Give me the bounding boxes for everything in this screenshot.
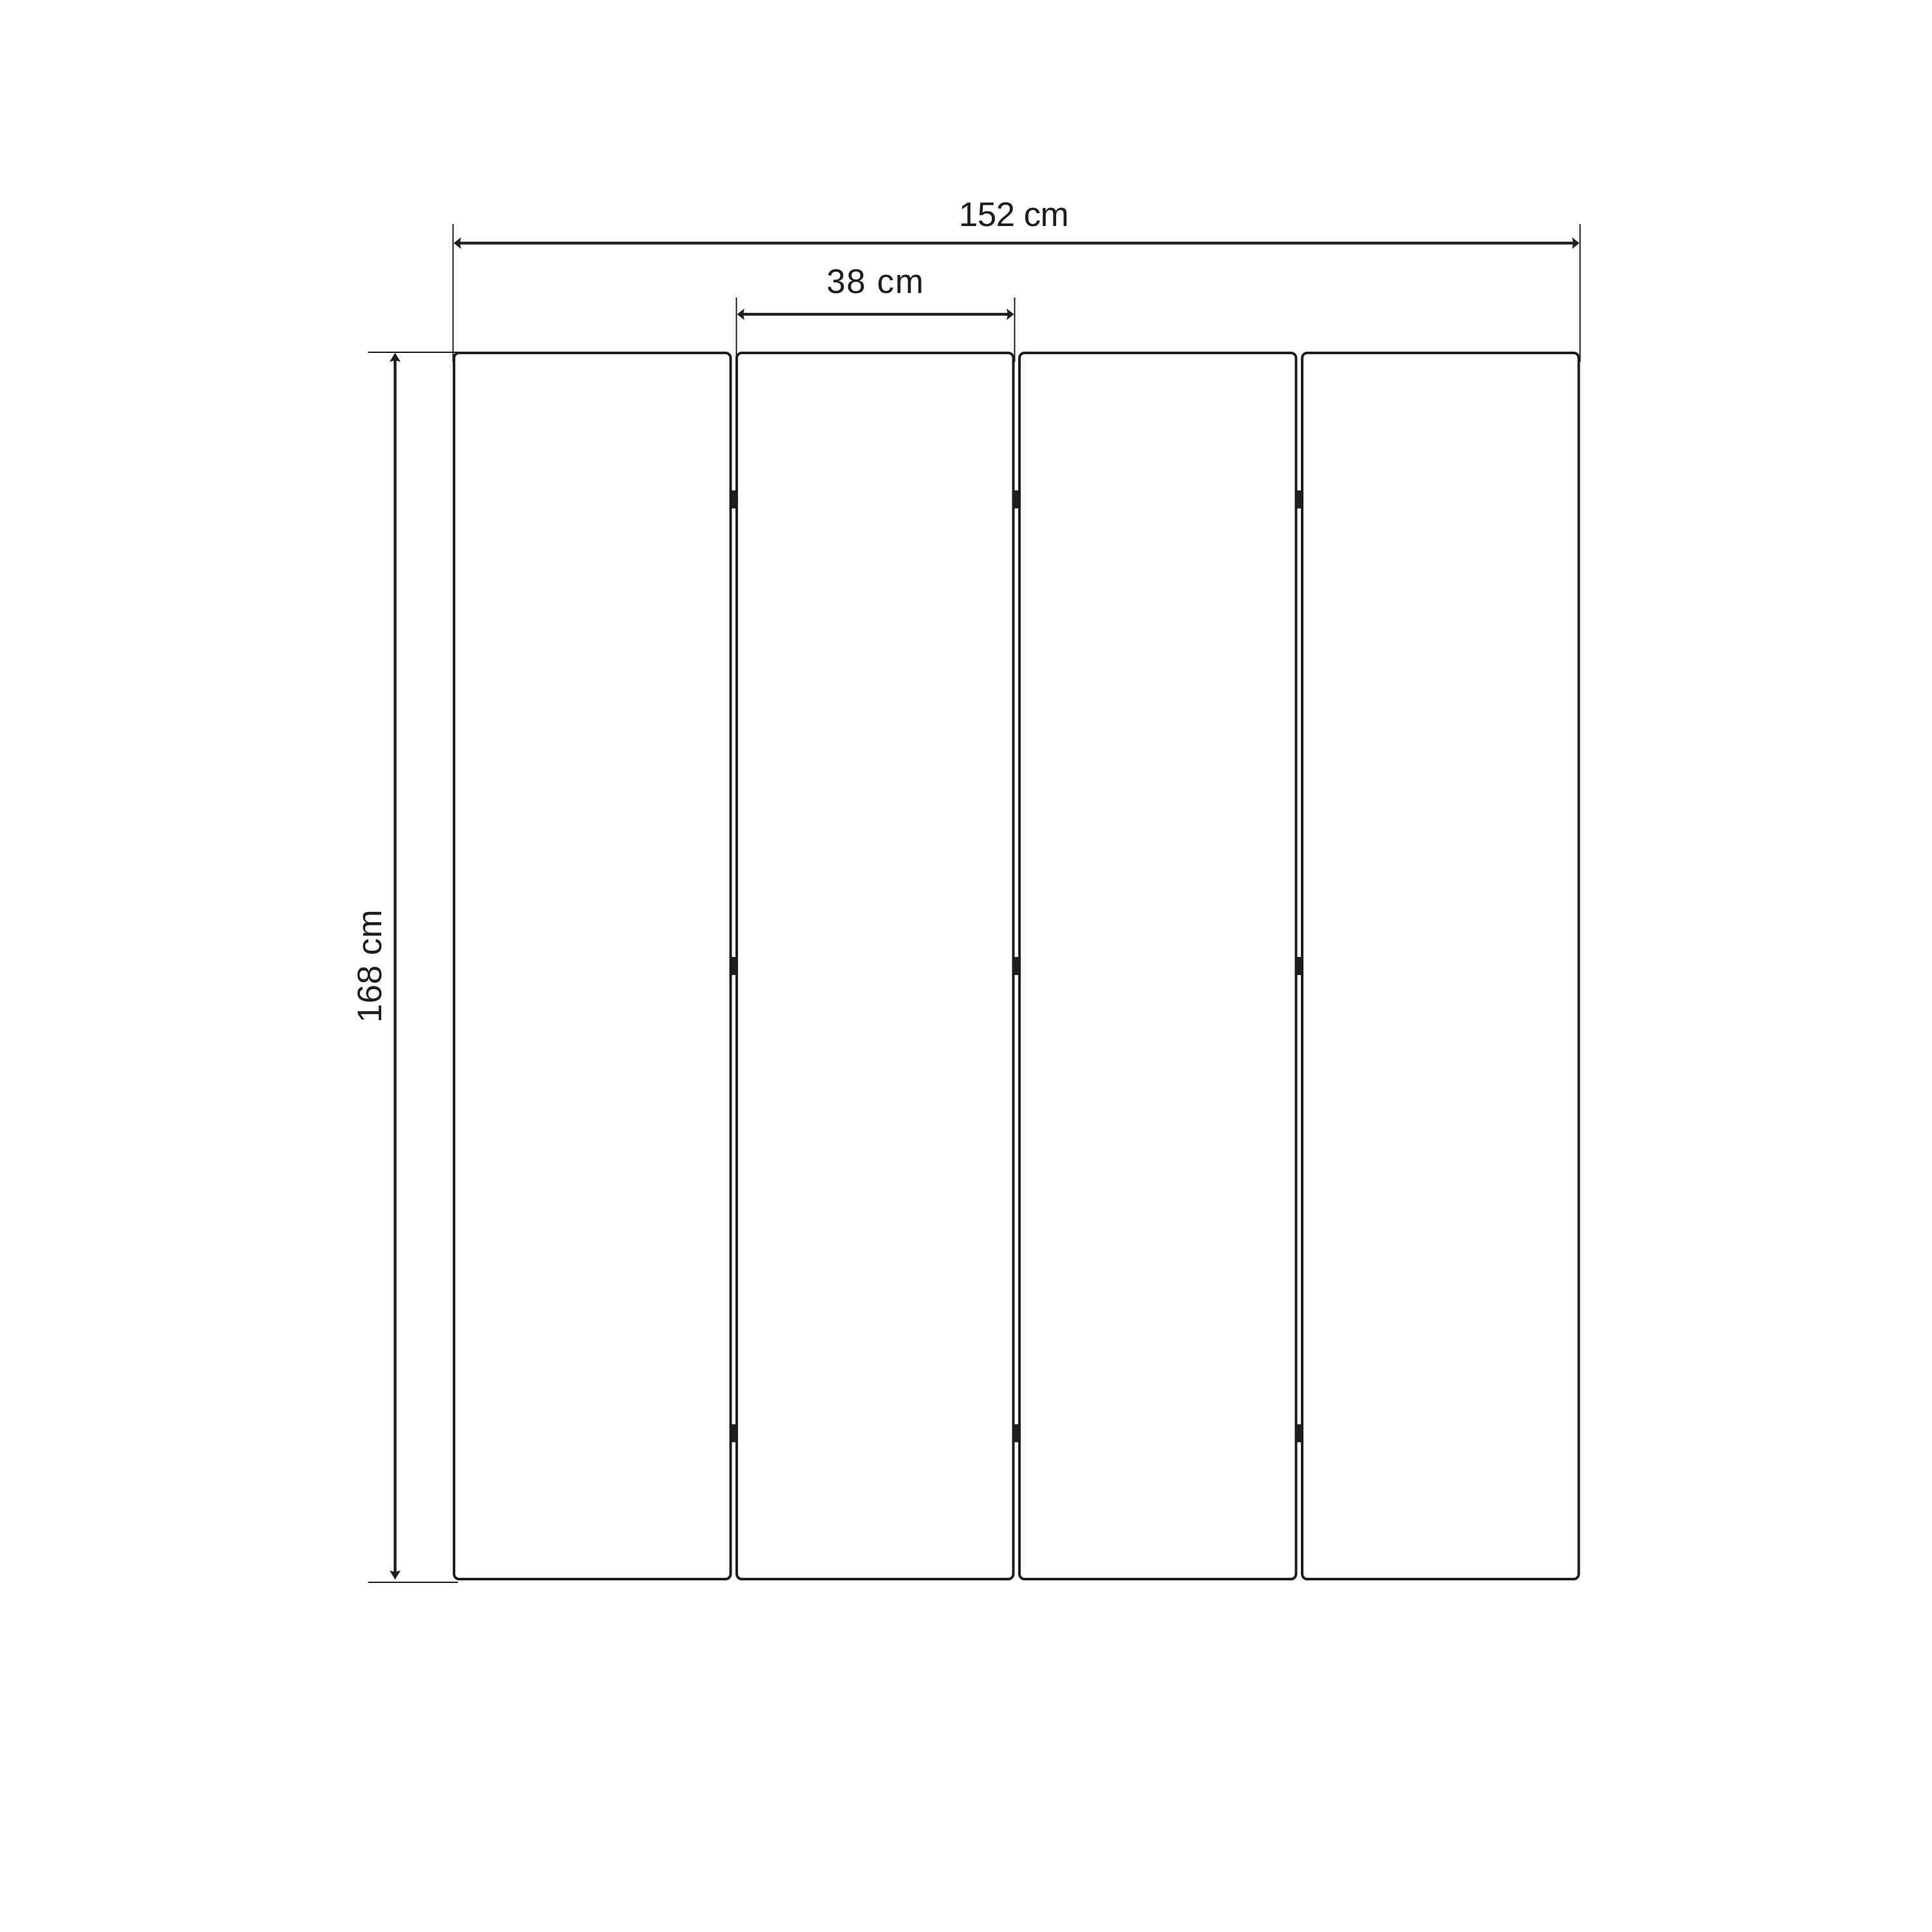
svg-text:152 cm: 152 cm [959, 196, 1068, 234]
svg-text:168 cm: 168 cm [351, 909, 389, 1023]
svg-text:38 cm: 38 cm [826, 263, 924, 301]
